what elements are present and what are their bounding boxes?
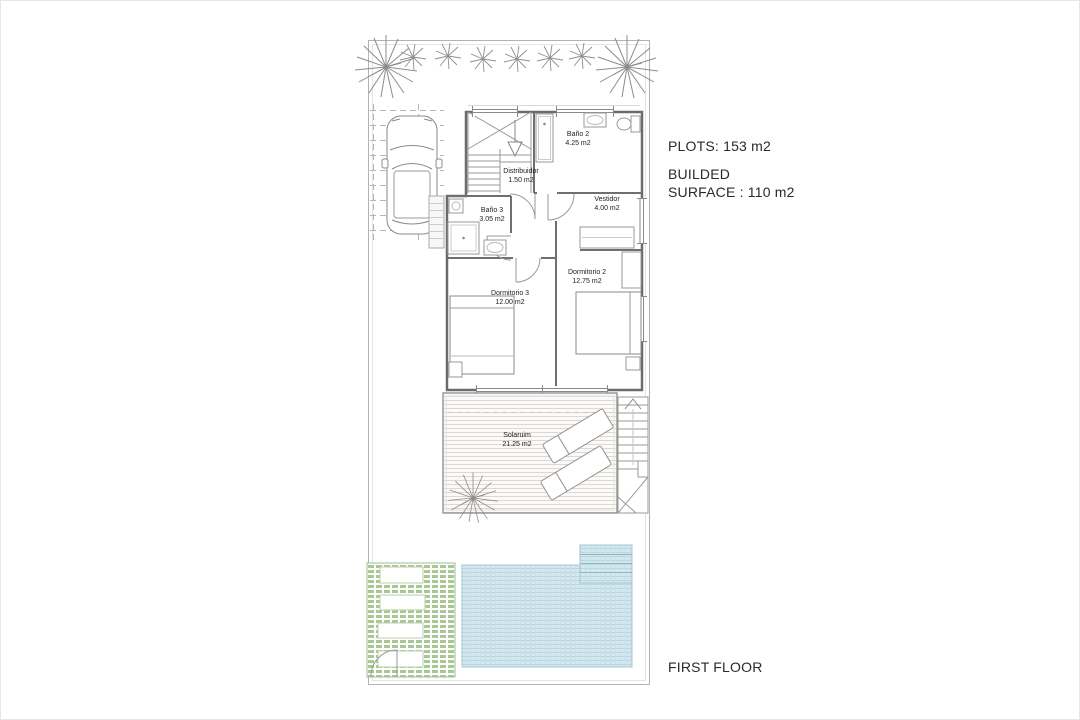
room-area: 21.25 m2: [502, 440, 531, 449]
closet: [622, 252, 641, 288]
room-area: 4.25 m2: [565, 139, 590, 148]
floor-plan-drawing: [0, 0, 1080, 720]
room-area: 12.75 m2: [568, 277, 606, 286]
shrub-icon: [400, 44, 426, 70]
solarium-terrace: [443, 393, 617, 523]
sink: [449, 199, 463, 213]
swimming-pool: [462, 545, 632, 667]
room-area: 12.00 m2: [491, 298, 529, 307]
floor-plan-page: Baño 2 4.25 m2 Distribuidor 1.50 m2 Baño…: [0, 0, 1080, 720]
lawn: [367, 563, 455, 677]
room-area: 3.05 m2: [479, 215, 504, 224]
room-label-bano-2: Baño 2 4.25 m2: [565, 130, 590, 148]
shrub-icon: [435, 43, 461, 69]
room-name: Dormitorio 3: [491, 289, 529, 298]
paver: [378, 623, 423, 638]
floor-title: FIRST FLOOR: [668, 658, 763, 676]
room-area: 4.00 m2: [594, 204, 619, 213]
window: [637, 198, 647, 244]
bedroom3-furniture: [449, 296, 514, 377]
shrub-icon: [504, 46, 530, 72]
room-label-dormitorio-3: Dormitorio 3 12.00 m2: [491, 289, 529, 307]
built-surface-line1: BUILDED: [668, 165, 795, 183]
pool-steps: [580, 545, 632, 583]
paver: [380, 567, 423, 583]
shrub-icon: [569, 43, 595, 69]
room-name: Baño 2: [565, 130, 590, 139]
wardrobe: [580, 227, 634, 248]
toilet: [631, 116, 640, 132]
room-name: Dormitorio 2: [568, 268, 606, 277]
room-label-vestidor: Vestidor 4.00 m2: [594, 195, 619, 213]
shrub-icon: [537, 45, 563, 71]
built-surface-line2: SURFACE : 110 m2: [668, 183, 795, 201]
room-label-bano-3: Baño 3 3.05 m2: [479, 206, 504, 224]
shrub-icon: [470, 46, 496, 72]
room-name: Solaruim: [502, 431, 531, 440]
window: [472, 106, 518, 117]
room-name: Baño 3: [479, 206, 504, 215]
room-label-solarium: Solaruim 21.25 m2: [502, 431, 531, 449]
room-area: 1.50 m2: [503, 176, 538, 185]
plots-annotation: PLOTS: 153 m2: [668, 137, 771, 155]
exterior-staircase: [618, 397, 648, 513]
entry-steps: [429, 196, 444, 248]
room-name: Distribuidor: [503, 167, 538, 176]
room-label-distribuidor: Distribuidor 1.50 m2: [503, 167, 538, 185]
nightstand: [626, 357, 640, 370]
room-label-dormitorio-2: Dormitorio 2 12.75 m2: [568, 268, 606, 286]
room-name: Vestidor: [594, 195, 619, 204]
bed: [576, 292, 641, 354]
nightstand: [449, 362, 462, 377]
built-surface-annotation: BUILDED SURFACE : 110 m2: [668, 165, 795, 201]
paver: [380, 595, 425, 610]
